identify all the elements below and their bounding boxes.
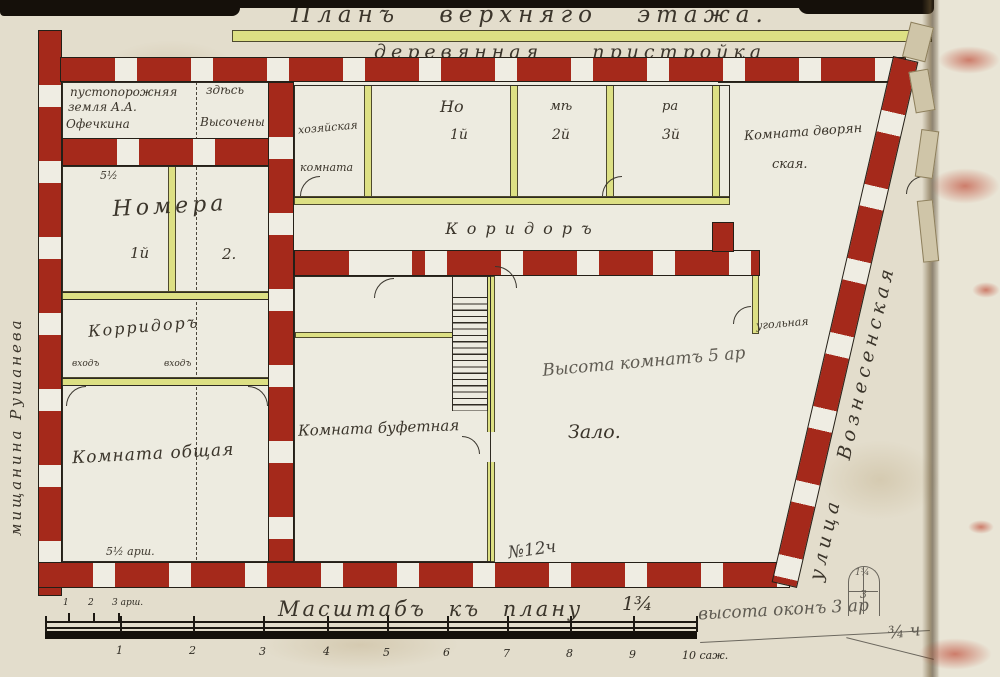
label-hall: Зало. xyxy=(568,422,621,443)
room-outline-numera xyxy=(62,166,292,293)
sazhen-last-label: 10 саж. xyxy=(682,649,728,662)
label-corridor-main: Коридоръ xyxy=(408,220,638,238)
label-khoz-2: комната xyxy=(300,162,353,174)
label-vacant-2: здѣсь xyxy=(206,84,244,97)
label-entrance-2: входъ xyxy=(164,360,191,370)
label-no2-syl: мѣ xyxy=(550,100,572,114)
red-smudge xyxy=(968,520,994,534)
scale-tick xyxy=(633,616,635,632)
scale-tick xyxy=(696,616,698,632)
arshin-label: 1 xyxy=(63,598,69,608)
window-sketch-mid-value: 3 xyxy=(860,588,867,601)
red-smudge xyxy=(918,638,992,670)
scale-tick xyxy=(263,616,265,632)
scale-tick xyxy=(193,616,195,632)
sazhen-label: 4 xyxy=(323,645,330,658)
sazhen-label: 8 xyxy=(566,647,573,660)
scale-ratio: 1¾ xyxy=(622,594,653,615)
arshin-label: 3 арш. xyxy=(112,598,143,608)
sazhen-label: 6 xyxy=(443,646,450,659)
scale-tick xyxy=(120,616,122,632)
sazhen-label: 3 xyxy=(259,645,266,658)
left-margin-owner-label: мищанина Рушанева xyxy=(8,56,25,556)
wall-stub xyxy=(712,222,734,252)
scale-pencil-note: высота оконъ 3 ар xyxy=(698,596,870,625)
label-vacant-5: Высочены xyxy=(200,116,265,129)
label-no3-num: 3й xyxy=(662,128,680,143)
label-no3-syl: ра xyxy=(662,100,678,114)
scale-tick xyxy=(570,616,572,632)
staircase xyxy=(452,297,488,411)
outer-wall-left xyxy=(38,30,62,596)
door-gap xyxy=(370,250,412,276)
red-smudge xyxy=(938,46,1000,74)
label-no2-num: 2й xyxy=(552,128,570,143)
room-outline-common xyxy=(62,385,292,562)
inner-wall-corridor-south xyxy=(294,250,760,276)
label-numera-1: 1й xyxy=(130,245,149,262)
right-page-margin xyxy=(938,0,1000,677)
sazhen-label: 1 xyxy=(116,644,123,657)
inner-wall-vacant-south xyxy=(62,138,292,166)
scale-tick xyxy=(327,616,329,632)
label-noble-2: ская. xyxy=(772,158,808,172)
label-vacant-4: Офечкина xyxy=(66,118,130,131)
outer-wall-bottom xyxy=(38,562,790,588)
label-no1-syl: Но xyxy=(440,98,464,116)
red-smudge xyxy=(972,282,1000,298)
sazhen-label: 9 xyxy=(629,648,636,661)
label-vacant-3: земля А.А. xyxy=(68,101,137,114)
room-outline-noble xyxy=(718,82,898,83)
pencil-fraction: ¾ ч xyxy=(887,620,921,643)
label-no1-num: 1й xyxy=(450,128,468,143)
arshin-tick xyxy=(68,613,70,623)
scale-tick xyxy=(507,616,509,632)
torn-top-edge xyxy=(238,0,802,8)
sazhen-label: 5 xyxy=(383,646,390,659)
scale-tick xyxy=(45,616,47,632)
scale-bar xyxy=(45,621,697,640)
inner-wall-mid-vertical xyxy=(268,82,294,562)
scale-tick xyxy=(447,616,449,632)
label-dim-bottom: 5½ арш. xyxy=(106,546,155,558)
torn-top-edge xyxy=(0,0,240,16)
label-vacant-1: пустопорожняя xyxy=(70,86,177,99)
label-entrance-1: входъ xyxy=(72,360,99,370)
red-smudge xyxy=(930,168,1000,204)
torn-top-edge xyxy=(798,0,934,14)
outer-wall-top xyxy=(60,57,906,82)
scanned-floor-plan: Планъ верхняго этажа. деревянная пристро… xyxy=(0,0,1000,677)
arshin-tick xyxy=(118,613,120,623)
window-sketch-top-value: 1¾ xyxy=(855,568,869,578)
sazhen-label: 7 xyxy=(503,647,510,660)
arshin-label: 2 xyxy=(88,598,94,608)
label-numera-2: 2. xyxy=(222,246,236,263)
scale-tick xyxy=(387,616,389,632)
label-numera-dim: 5½ xyxy=(100,170,118,182)
scale-title: Масштабъ къ плану xyxy=(278,598,583,621)
sazhen-label: 2 xyxy=(189,644,196,657)
arshin-tick xyxy=(93,613,95,623)
